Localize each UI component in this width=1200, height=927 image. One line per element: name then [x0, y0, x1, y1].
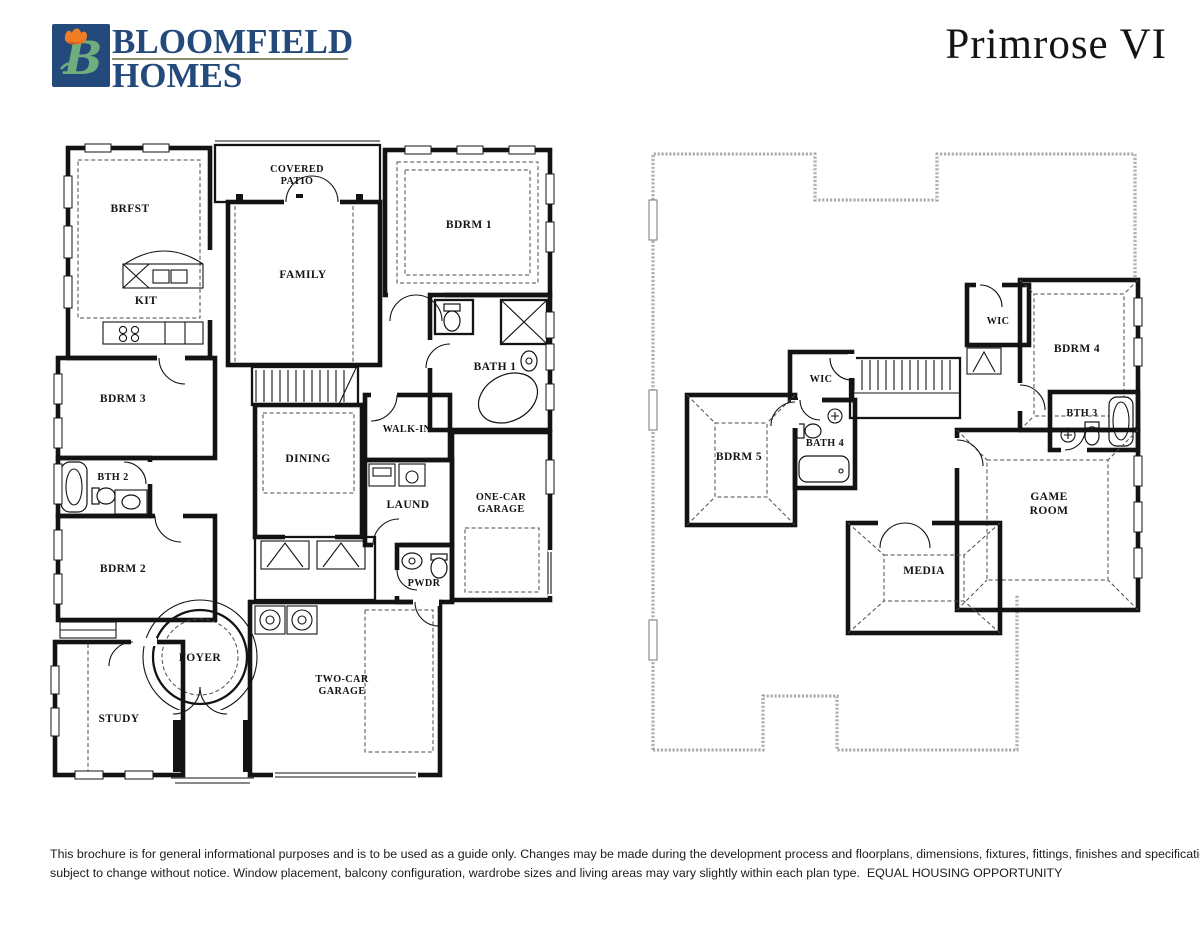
svg-text:GARAGE: GARAGE — [318, 686, 365, 697]
brand-name-line1: BLOOMFIELD — [112, 26, 353, 57]
room-one-car-garage: ONE-CAR GARAGE — [452, 432, 556, 600]
room-label-two-car-garage: TWO-CAR — [315, 674, 368, 685]
room-media: MEDIA — [848, 519, 1000, 633]
room-brfst-kit: BRFST KIT — [68, 148, 210, 358]
room-label-family: FAMILY — [279, 269, 326, 281]
room-label-game-room: GAME — [1030, 491, 1067, 503]
svg-text:PATIO: PATIO — [281, 176, 314, 187]
room-bdrm3: BDRM 3 — [58, 354, 215, 458]
room-label-laund: LAUND — [387, 499, 430, 511]
room-label-media: MEDIA — [903, 565, 945, 577]
room-bth3: BTH 3 — [1050, 392, 1138, 454]
room-dining: DINING — [255, 405, 362, 541]
room-game-room: GAME ROOM — [953, 430, 1138, 610]
room-label-bdrm1: BDRM 1 — [446, 219, 492, 231]
room-label-pwdr: PWDR — [408, 578, 441, 589]
room-label-bdrm4: BDRM 4 — [1054, 343, 1100, 355]
disclaimer-line2: subject to change without notice. Window… — [50, 864, 1180, 883]
room-label-bath1: BATH 1 — [474, 361, 517, 373]
room-laund: LAUND — [365, 460, 452, 549]
disclaimer: This brochure is for general information… — [50, 845, 1180, 883]
room-label-bath4: BATH 4 — [806, 438, 844, 449]
room-two-car-garage: TWO-CAR GARAGE — [250, 598, 440, 779]
room-wic-lower: WIC — [790, 352, 856, 400]
room-walk-in: WALK-IN — [365, 391, 450, 460]
brand-text: BLOOMFIELD HOMES — [112, 26, 353, 91]
room-label-study: STUDY — [99, 713, 140, 725]
brochure-page: B BLOOMFIELD HOMES Primrose VI COVERED P… — [0, 0, 1200, 927]
room-bath4: BATH 4 — [795, 396, 855, 488]
room-label-brfst: BRFST — [110, 203, 149, 215]
room-bth2: BTH 2 — [58, 458, 154, 516]
room-label-bdrm2: BDRM 2 — [100, 563, 146, 575]
room-label-kit: KIT — [135, 295, 157, 307]
bloomfield-logo-icon: B — [52, 24, 110, 87]
room-label-bdrm3: BDRM 3 — [100, 393, 146, 405]
room-label-one-car-garage: ONE-CAR — [476, 492, 527, 503]
room-family: FAMILY — [206, 176, 380, 365]
plan-title: Primrose VI — [945, 20, 1167, 69]
svg-text:GARAGE: GARAGE — [477, 504, 524, 515]
room-label-bdrm5: BDRM 5 — [716, 451, 762, 463]
room-label-bth2: BTH 2 — [97, 472, 128, 483]
room-label-bth3: BTH 3 — [1066, 408, 1097, 419]
room-label-covered-patio: COVERED — [270, 164, 324, 175]
room-bdrm2: BDRM 2 — [58, 512, 215, 620]
bloomfield-logo: B — [52, 24, 110, 87]
linen-closet — [60, 622, 116, 638]
room-bdrm5: BDRM 5 — [687, 395, 799, 525]
room-label-walk-in: WALK-IN — [383, 424, 432, 435]
first-floor-plan: COVERED PATIO BRFST KIT FAMILY — [45, 130, 565, 800]
svg-text:ROOM: ROOM — [1030, 505, 1069, 517]
room-label-wic-upper: WIC — [987, 316, 1010, 327]
room-study: STUDY — [55, 638, 183, 775]
room-label-wic-lower: WIC — [810, 374, 833, 385]
room-pwdr: PWDR — [393, 545, 452, 602]
second-floor-plan: WIC BDRM 4 WIC — [645, 140, 1160, 770]
room-bath1: BATH 1 — [426, 295, 550, 433]
staircase-upper — [850, 358, 960, 418]
room-label-dining: DINING — [285, 453, 330, 465]
room-covered-patio: COVERED PATIO — [215, 141, 380, 202]
hall-vestibule — [255, 537, 375, 600]
disclaimer-line1: This brochure is for general information… — [50, 845, 1180, 864]
brand-name-line2: HOMES — [112, 60, 353, 91]
staircase — [252, 366, 358, 405]
